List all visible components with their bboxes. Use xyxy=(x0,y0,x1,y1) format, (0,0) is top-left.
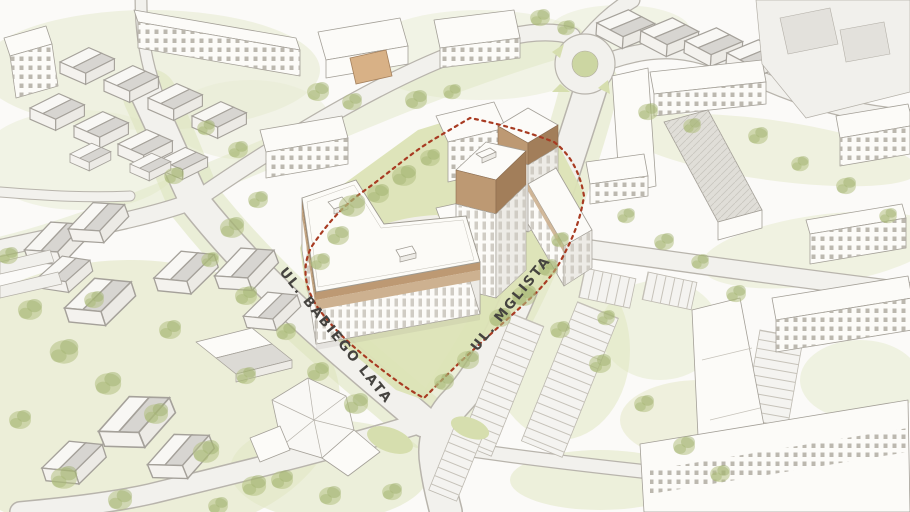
architectural-site-plan: UL. BABIEGO LATA UL. MGLISTA xyxy=(0,0,910,512)
site-plan-canvas: UL. BABIEGO LATA UL. MGLISTA xyxy=(0,0,910,512)
building-small-east xyxy=(586,154,648,204)
